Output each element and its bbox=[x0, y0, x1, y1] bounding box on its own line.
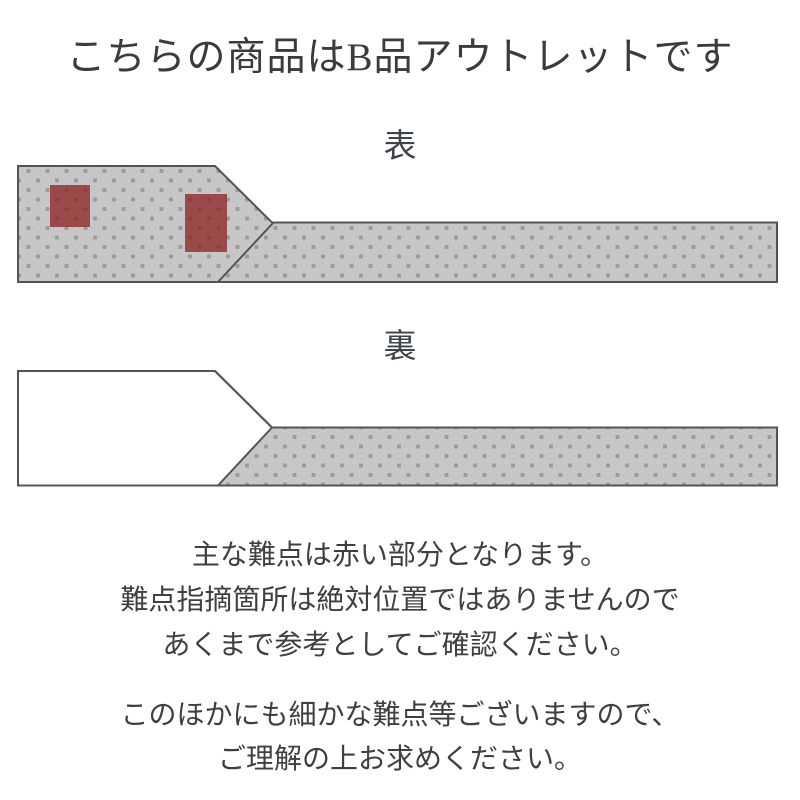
back-diagram bbox=[18, 371, 777, 486]
defect-marker bbox=[50, 185, 90, 227]
back-patterned-area bbox=[218, 428, 777, 486]
front-diagram bbox=[18, 166, 777, 282]
note-line: このほかにも細かな難点等ございますので、 bbox=[0, 694, 800, 738]
defect-explanation-note: 主な難点は赤い部分となります。 難点指摘箇所は絶対位置ではありませんので あくま… bbox=[0, 533, 800, 668]
note-line: 主な難点は赤い部分となります。 bbox=[0, 533, 800, 578]
defect-marker bbox=[185, 194, 227, 252]
note-line: あくまで参考としてご確認ください。 bbox=[0, 623, 800, 668]
obi-defect-diagram bbox=[0, 0, 800, 800]
front-obi-shape bbox=[18, 166, 777, 282]
product-notice-page: こちらの商品はB品アウトレットです 表 裏 bbox=[0, 0, 800, 800]
additional-note: このほかにも細かな難点等ございますので、 ご理解の上お求めください。 bbox=[0, 694, 800, 782]
note-line: ご理解の上お求めください。 bbox=[0, 738, 800, 782]
note-line: 難点指摘箇所は絶対位置ではありませんので bbox=[0, 578, 800, 623]
